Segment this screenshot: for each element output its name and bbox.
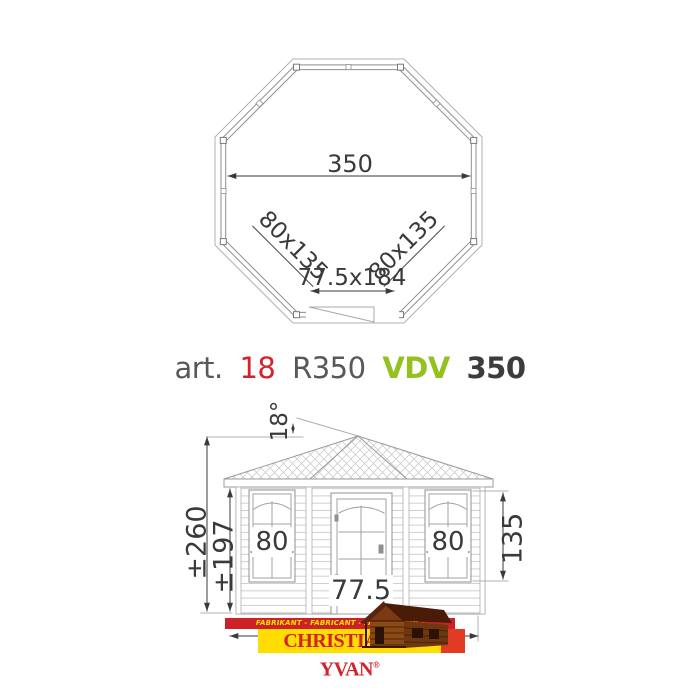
title-series-size: 350 [467, 351, 526, 385]
roof-slope-extension-line [297, 418, 358, 436]
plan-door-label: 77.5x184 [292, 265, 412, 291]
title-model-code: R350 [292, 351, 366, 385]
wall-height-label: ±197 [209, 517, 240, 597]
window-left-width-label: 80 [252, 527, 292, 557]
door-hinge-top [335, 515, 338, 521]
title-prefix: art. [174, 351, 222, 385]
title-series-code: VDV [382, 351, 449, 385]
title-article-number: 18 [239, 351, 275, 385]
plan-diameter-label: 350 [320, 150, 380, 178]
roof [224, 436, 493, 487]
catalog-page: 350 80x135 80x135 77.5x184 art. 18 R350 … [0, 0, 700, 700]
cabin-logo-icon [360, 597, 452, 652]
window-right-width-label: 80 [428, 527, 468, 557]
registered-trademark-symbol: ® [373, 660, 379, 670]
door-handle [379, 545, 383, 553]
roof-angle-label: 18° [267, 396, 293, 446]
article-title: art. 18 R350 VDV 350 [0, 351, 700, 385]
window-height-label: 135 [498, 509, 529, 569]
eave-fascia [224, 479, 493, 487]
